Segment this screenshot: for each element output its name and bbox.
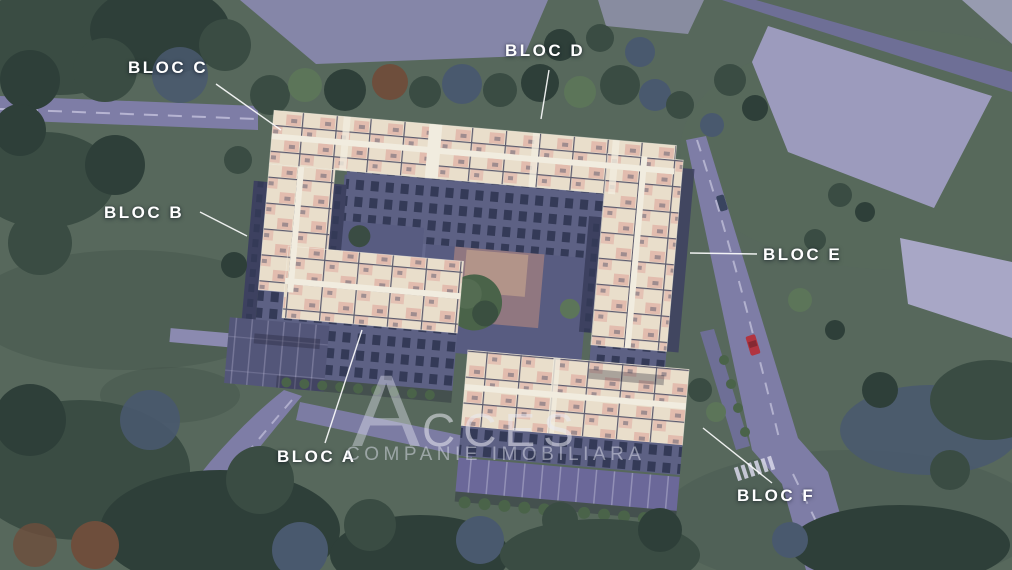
label-bloc-d: BLOC D [505,41,585,61]
label-bloc-a: BLOC A [277,447,357,467]
label-bloc-e: BLOC E [763,245,842,265]
label-bloc-f: BLOC F [737,486,815,506]
leader-bloc-e [690,253,757,254]
aerial-render: BLOC A BLOC B BLOC C BLOC D BLOC E BLOC … [0,0,1012,570]
label-bloc-b: BLOC B [104,203,184,223]
label-bloc-c: BLOC C [128,58,208,78]
site-render-scene [0,0,1012,570]
